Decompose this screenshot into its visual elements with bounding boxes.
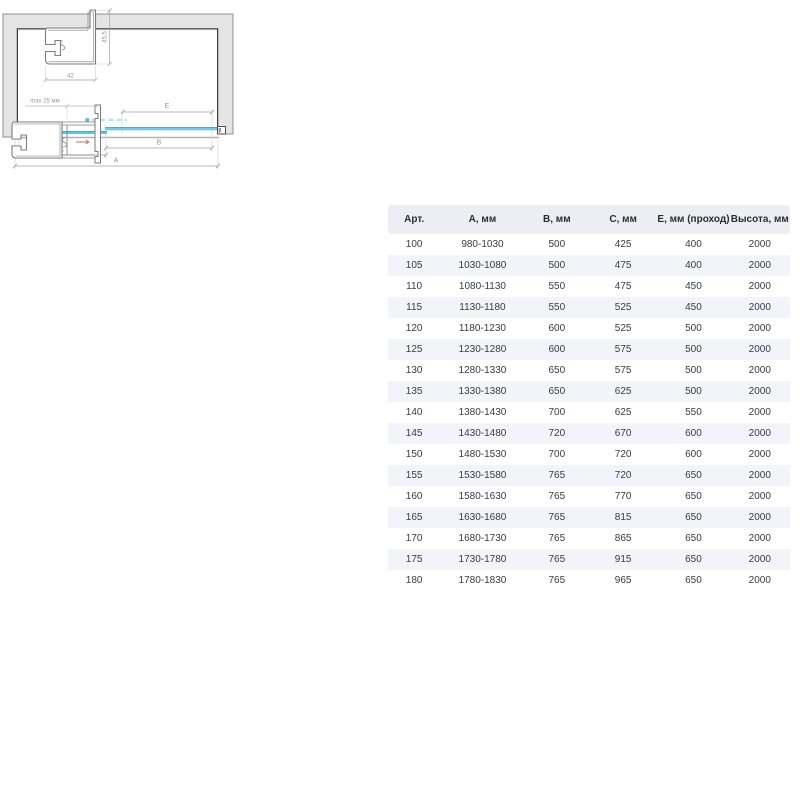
table-cell: 400 [657,239,729,250]
profile-section-bottom: max 25 мм [12,99,101,164]
profile-drawings: 42 45,5 [0,0,130,185]
table-cell: 2000 [730,533,790,544]
table-cell: 625 [589,407,657,418]
table-cell: 765 [525,491,589,502]
table-cell: 1230-1280 [440,344,524,355]
table-cell: 1530-1580 [440,470,524,481]
adjustment-arrow [76,140,89,144]
adjustment-dimension: max 25 мм [25,99,99,121]
table-cell: 815 [589,512,657,523]
dimension-e-label: E [165,103,170,110]
table-cell: 700 [525,449,589,460]
table-cell: 865 [589,533,657,544]
table-cell: 2000 [730,554,790,565]
table-cell: 2000 [730,323,790,334]
table-cell: 625 [589,386,657,397]
table-cell: 1430-1480 [440,428,524,439]
table-cell: 130 [388,365,440,376]
table-cell: 1330-1380 [440,386,524,397]
table-cell: 1130-1180 [440,302,524,313]
table-row: 1601580-16307657706502000 [388,486,790,507]
table-cell: 500 [657,344,729,355]
table-cell: 1380-1430 [440,407,524,418]
col-header-b: В, мм [525,214,589,225]
table-cell: 140 [388,407,440,418]
table-row: 1701680-17307658656502000 [388,528,790,549]
col-header-art: Арт. [388,214,440,225]
table-cell: 2000 [730,428,790,439]
table-cell: 1780-1830 [440,575,524,586]
table-cell: 650 [657,512,729,523]
table-cell: 125 [388,344,440,355]
table-cell: 700 [525,407,589,418]
table-cell: 165 [388,512,440,523]
profile-height-dimension: 45,5 [97,8,113,66]
table-cell: 525 [589,302,657,313]
table-cell: 155 [388,470,440,481]
table-cell: 475 [589,260,657,271]
table-cell: 2000 [730,260,790,271]
table-cell: 110 [388,281,440,292]
screw-boss [62,138,67,148]
table-row: 1751730-17807659156502000 [388,549,790,570]
spec-table-body: 100980-103050042540020001051030-10805004… [388,234,790,591]
table-cell: 2000 [730,281,790,292]
table-cell: 575 [589,365,657,376]
table-row: 1251230-12806005755002000 [388,339,790,360]
table-cell: 175 [388,554,440,565]
table-cell: 980-1030 [440,239,524,250]
wall-bracket-right [218,127,226,135]
table-cell: 425 [589,239,657,250]
table-cell: 170 [388,533,440,544]
col-header-e: Е, мм (проход) [657,214,729,225]
table-cell: 150 [388,449,440,460]
profile-height-label: 45,5 [103,31,109,43]
table-row: 100980-10305004254002000 [388,234,790,255]
spec-sheet: E B C A 42 [0,0,800,800]
table-row: 1301280-13306505755002000 [388,360,790,381]
table-cell: 650 [525,386,589,397]
table-cell: 2000 [730,470,790,481]
table-cell: 500 [525,239,589,250]
table-cell: 650 [657,554,729,565]
table-cell: 105 [388,260,440,271]
table-header-row: Арт. А, мм В, мм С, мм Е, мм (проход) Вы… [388,205,790,234]
table-cell: 500 [657,386,729,397]
table-cell: 765 [525,533,589,544]
table-cell: 135 [388,386,440,397]
table-cell: 765 [525,470,589,481]
wall-strip-profile [95,105,101,163]
table-row: 1651630-16807658156502000 [388,507,790,528]
table-cell: 765 [525,575,589,586]
table-cell: 2000 [730,302,790,313]
table-cell: 915 [589,554,657,565]
table-cell: 650 [657,533,729,544]
dimension-e: E [121,103,214,114]
profile-width-label: 42 [67,74,74,80]
table-cell: 1480-1530 [440,449,524,460]
table-cell: 550 [657,407,729,418]
table-cell: 770 [589,491,657,502]
table-row: 1151130-11805505254502000 [388,297,790,318]
table-cell: 120 [388,323,440,334]
table-row: 1101080-11305504754502000 [388,276,790,297]
table-row: 1051030-10805004754002000 [388,255,790,276]
table-cell: 2000 [730,575,790,586]
col-header-height: Высота, мм [730,214,790,225]
table-row: 1801780-18307659656502000 [388,570,790,591]
table-row: 1501480-15307007206002000 [388,444,790,465]
table-cell: 115 [388,302,440,313]
table-row: 1351330-13806506255002000 [388,381,790,402]
table-cell: 650 [657,491,729,502]
table-cell: 650 [657,575,729,586]
table-cell: 650 [657,470,729,481]
profile-section-top: 42 45,5 [44,8,113,82]
table-cell: 2000 [730,512,790,523]
table-cell: 765 [525,512,589,523]
table-cell: 1180-1230 [440,323,524,334]
table-cell: 1630-1680 [440,512,524,523]
table-row: 1201180-12306005255002000 [388,318,790,339]
table-cell: 450 [657,281,729,292]
table-cell: 650 [525,365,589,376]
table-cell: 500 [525,260,589,271]
table-cell: 500 [657,365,729,376]
table-cell: 720 [589,470,657,481]
table-cell: 765 [525,554,589,565]
table-cell: 2000 [730,407,790,418]
table-cell: 2000 [730,491,790,502]
table-cell: 2000 [730,344,790,355]
table-row: 1451430-14807206706002000 [388,423,790,444]
table-cell: 2000 [730,365,790,376]
table-cell: 180 [388,575,440,586]
table-cell: 550 [525,281,589,292]
table-cell: 1030-1080 [440,260,524,271]
col-header-c: С, мм [589,214,657,225]
table-cell: 400 [657,260,729,271]
table-cell: 600 [525,344,589,355]
dimension-b-label: B [157,140,162,147]
table-cell: 1280-1330 [440,365,524,376]
table-cell: 2000 [730,239,790,250]
table-cell: 720 [525,428,589,439]
adjustment-label: max 25 мм [30,99,60,105]
table-cell: 160 [388,491,440,502]
table-cell: 1080-1130 [440,281,524,292]
table-cell: 670 [589,428,657,439]
table-cell: 965 [589,575,657,586]
table-cell: 1580-1630 [440,491,524,502]
table-cell: 525 [589,323,657,334]
table-cell: 720 [589,449,657,460]
table-cell: 575 [589,344,657,355]
table-cell: 2000 [730,449,790,460]
table-cell: 550 [525,302,589,313]
table-cell: 600 [657,428,729,439]
profile-width-dimension: 42 [44,66,98,82]
table-cell: 100 [388,239,440,250]
col-header-a: А, мм [440,214,524,225]
table-cell: 475 [589,281,657,292]
table-cell: 450 [657,302,729,313]
adjustment-rails [62,122,95,158]
table-cell: 1730-1780 [440,554,524,565]
table-cell: 600 [525,323,589,334]
table-cell: 600 [657,449,729,460]
table-cell: 1680-1730 [440,533,524,544]
table-cell: 500 [657,323,729,334]
table-cell: 2000 [730,386,790,397]
table-row: 1401380-14307006255502000 [388,402,790,423]
table-cell: 145 [388,428,440,439]
spec-table: Арт. А, мм В, мм С, мм Е, мм (проход) Вы… [388,205,790,591]
table-row: 1551530-15807657206502000 [388,465,790,486]
